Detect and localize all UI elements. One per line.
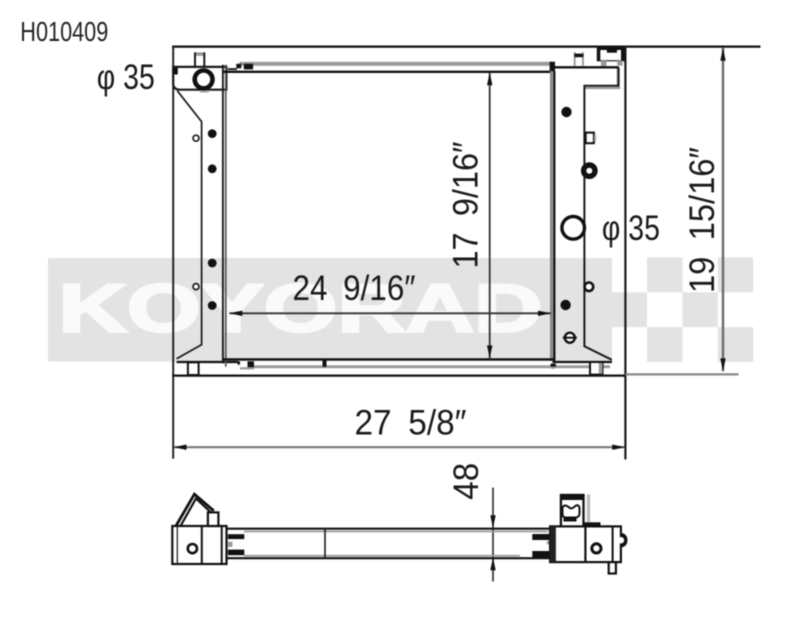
svg-text:48: 48 [447,463,486,500]
svg-text:27 5/8″: 27 5/8″ [355,403,467,442]
svg-text:φ 35: φ 35 [97,58,155,97]
svg-text:24 9/16″: 24 9/16″ [293,269,416,308]
svg-text:H010409: H010409 [20,16,108,47]
svg-text:φ 35: φ 35 [602,209,660,248]
svg-text:17 9/16″: 17 9/16″ [446,142,485,269]
svg-text:19 15/16″: 19 15/16″ [683,147,722,293]
